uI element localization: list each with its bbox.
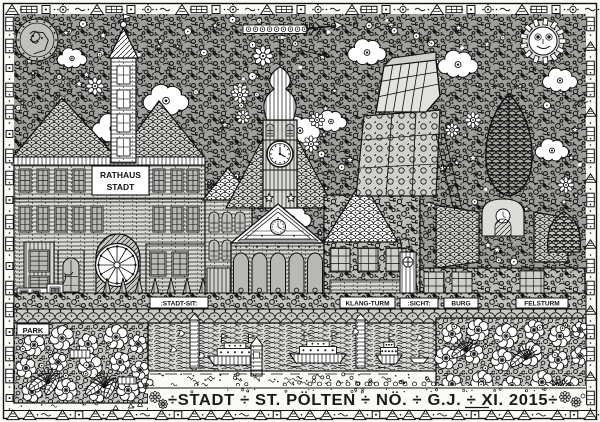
- svg-text:PARK: PARK: [23, 326, 44, 335]
- svg-text:STADT: STADT: [107, 182, 136, 192]
- svg-text:FELSTURM: FELSTURM: [524, 301, 559, 308]
- svg-text:KLANG-TURM: KLANG-TURM: [345, 301, 389, 308]
- svg-text:RATHAUS: RATHAUS: [100, 170, 141, 180]
- svg-text::STADT-SIT:: :STADT-SIT:: [161, 301, 198, 308]
- svg-text:BURG: BURG: [451, 301, 470, 308]
- svg-text:÷STADT ÷ ST. PÖLTEN ÷ NÖ. ÷ G.: ÷STADT ÷ ST. PÖLTEN ÷ NÖ. ÷ G.J. ÷ XI. 2…: [168, 392, 558, 409]
- svg-text::SICHT:: :SICHT:: [407, 301, 430, 308]
